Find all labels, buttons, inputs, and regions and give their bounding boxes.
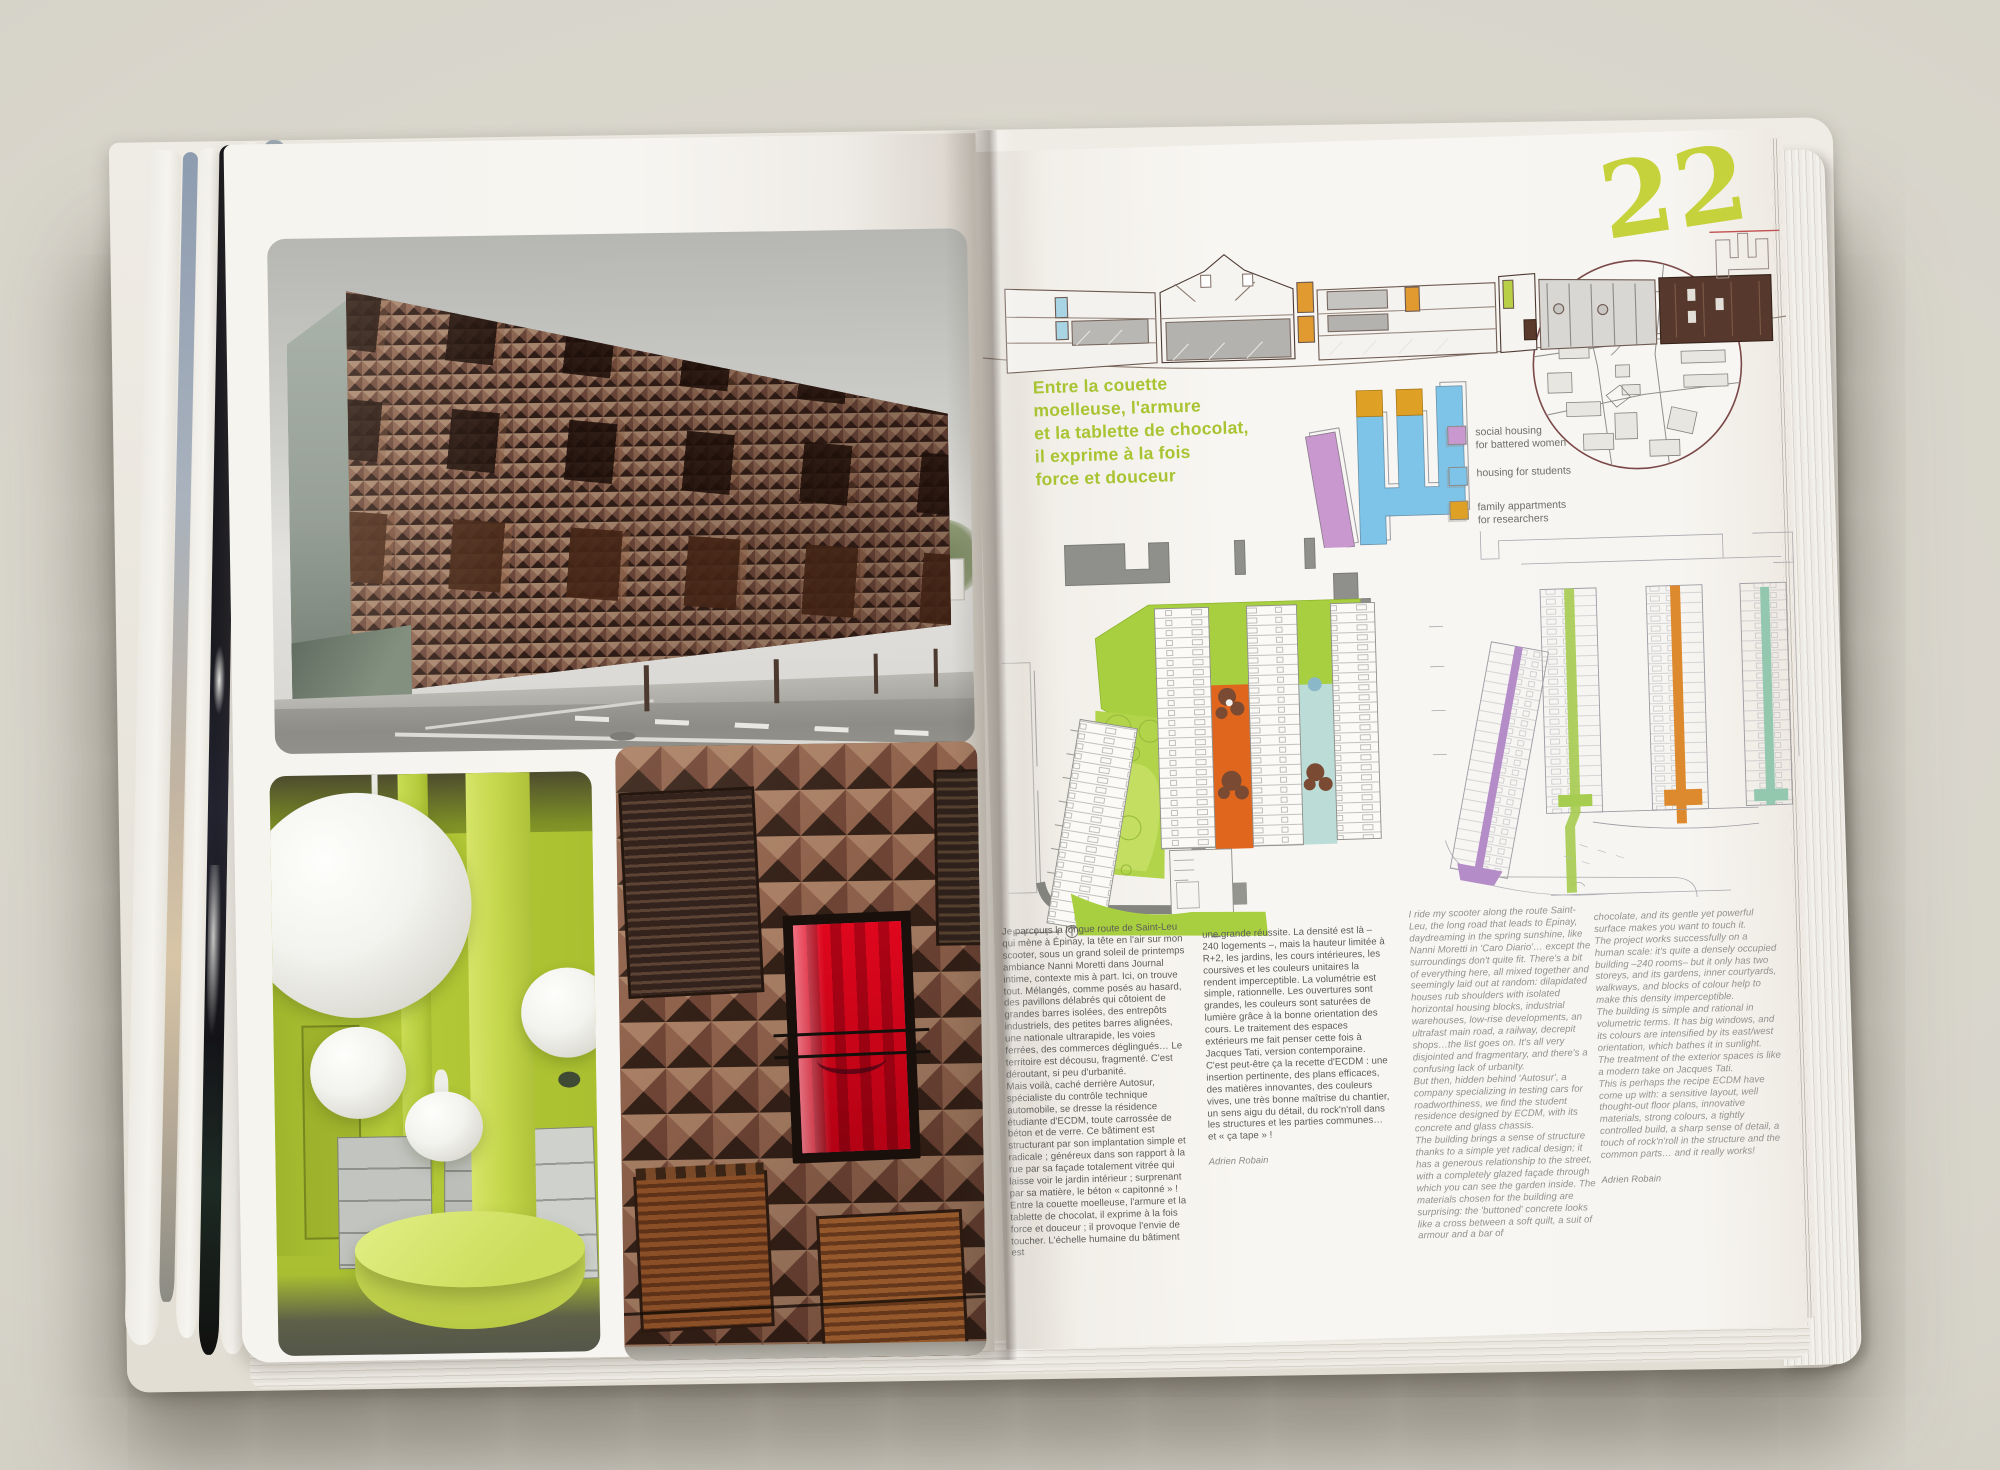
legend-label: family appartments for researchers bbox=[1477, 498, 1566, 527]
shutter-upper-right-sliver bbox=[933, 769, 986, 946]
facade-shading bbox=[345, 247, 952, 696]
column-english-2: chocolate, and its gentle yet powerful s… bbox=[1593, 895, 1785, 1199]
legend: social housing for battered women housin… bbox=[1447, 421, 1640, 543]
photo-sliver-highlight-2 bbox=[206, 865, 223, 1045]
column-french-1: Je parcours la longue route de Saint-Leu… bbox=[1002, 921, 1195, 1260]
bollard-1 bbox=[644, 665, 650, 711]
photo-green-lobby-interior bbox=[269, 771, 600, 1356]
photo-of-open-book: 22 bbox=[0, 0, 2000, 1470]
shutter-lower-right bbox=[816, 1209, 969, 1361]
column-english-2-text: chocolate, and its gentle yet powerful s… bbox=[1594, 907, 1781, 1161]
bollard-4 bbox=[934, 649, 939, 687]
legend-item-family-apartments: family appartments for researchers bbox=[1449, 496, 1640, 528]
photo-facade-closeup bbox=[615, 741, 987, 1361]
legend-swatch-orange bbox=[1449, 501, 1469, 521]
building-quilted-facade bbox=[345, 247, 952, 696]
column-french-2: une grande réussite. La densité est là –… bbox=[1202, 912, 1393, 1180]
left-page bbox=[224, 133, 995, 1363]
site-plan-ground-floor bbox=[994, 532, 1411, 949]
headline-french-quote: Entre la couette moelleuse, l'armure et … bbox=[1032, 368, 1305, 491]
legend-item-social-housing: social housing for battered women bbox=[1447, 421, 1638, 453]
bollard-3 bbox=[874, 654, 879, 694]
legend-item-student-housing: housing for students bbox=[1448, 462, 1638, 487]
column-english-1: I ride my scooter along the route Saint-… bbox=[1408, 904, 1601, 1243]
legend-label: housing for students bbox=[1476, 464, 1571, 480]
window-red-curtain bbox=[782, 911, 920, 1164]
legend-label: social housing for battered women bbox=[1475, 423, 1566, 452]
shutter-upper-left bbox=[618, 786, 764, 999]
byline-french: Adrien Robain bbox=[1209, 1151, 1392, 1168]
column-french-2-text: une grande réussite. La densité est là –… bbox=[1202, 925, 1390, 1143]
photo-sliver-highlight bbox=[213, 645, 226, 715]
right-page: 22 bbox=[971, 128, 1818, 1350]
legend-swatch-purple bbox=[1447, 426, 1467, 446]
photo-building-street-view bbox=[267, 228, 975, 754]
site-plan-first-floor bbox=[1420, 519, 1832, 936]
byline-english: Adrien Robain bbox=[1601, 1169, 1784, 1186]
legend-swatch-blue bbox=[1448, 467, 1468, 487]
bollard-2 bbox=[774, 659, 780, 703]
